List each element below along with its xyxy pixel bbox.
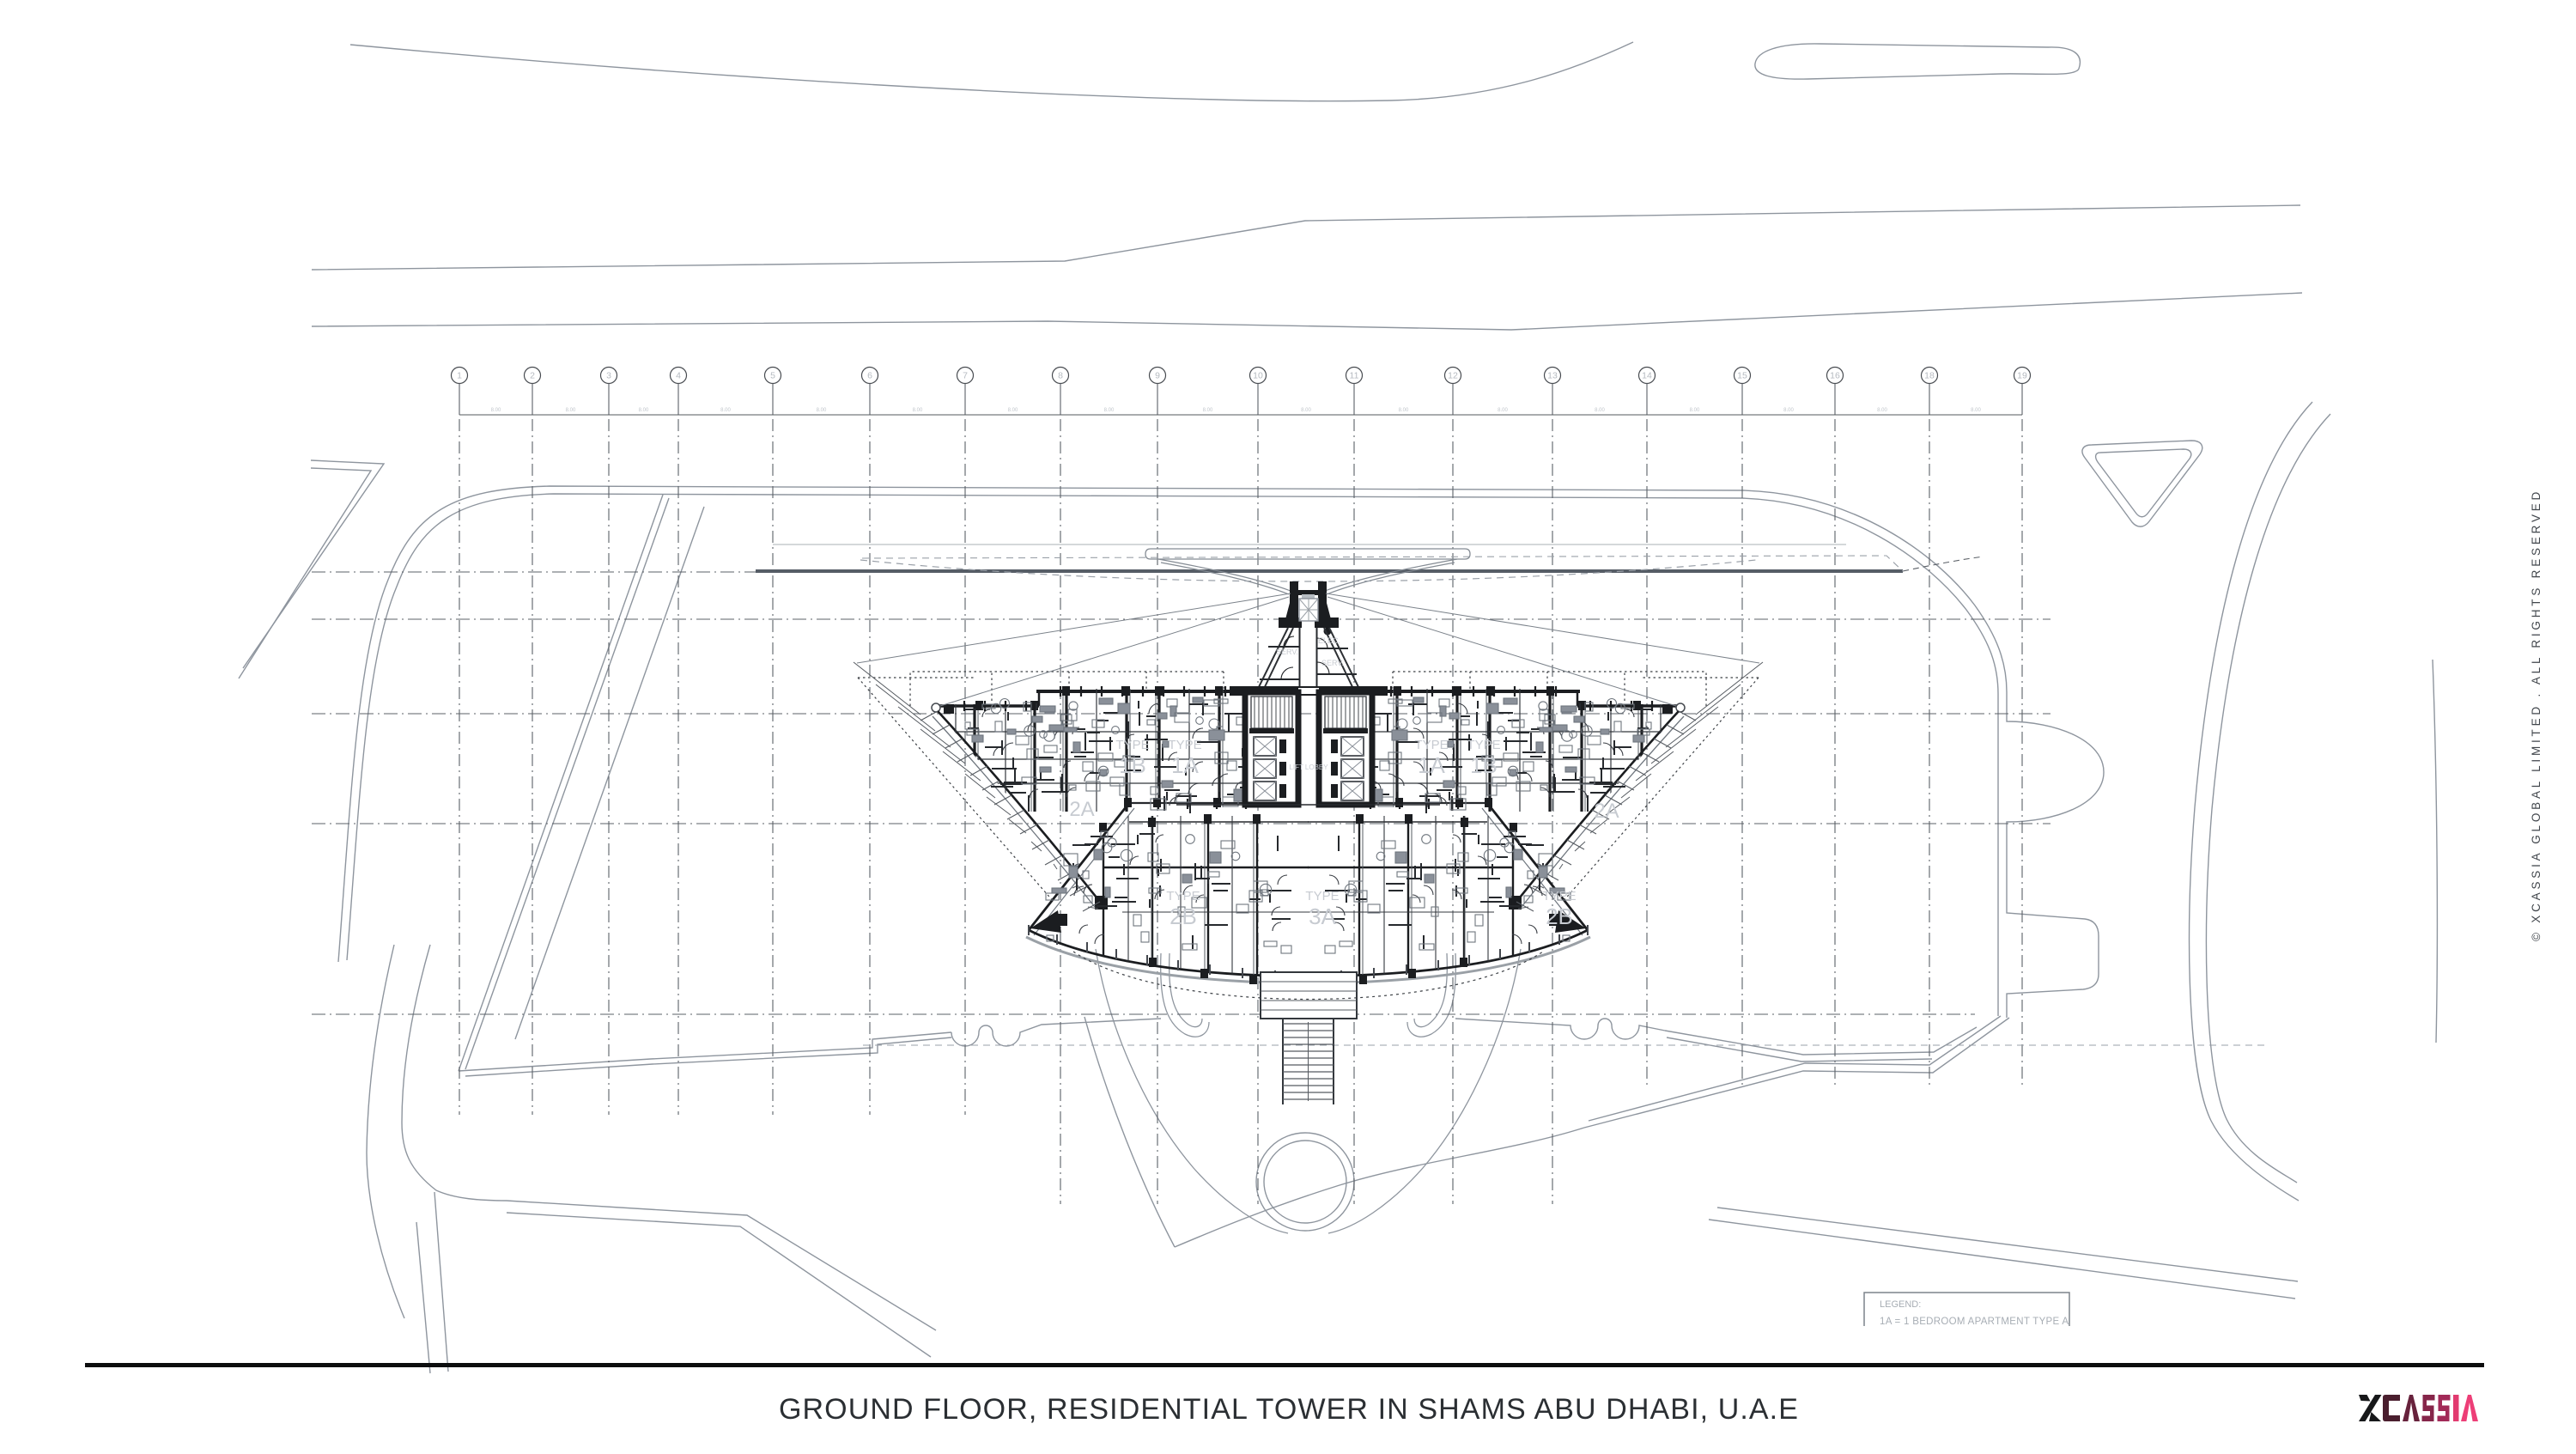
svg-text:6: 6 xyxy=(867,371,872,381)
svg-text:LIFT LOBBY: LIFT LOBBY xyxy=(1289,764,1328,771)
svg-text:14: 14 xyxy=(1642,371,1652,381)
svg-text:8.00: 8.00 xyxy=(913,408,923,413)
svg-text:8.00: 8.00 xyxy=(720,408,731,413)
svg-text:SERV.: SERV. xyxy=(1321,659,1344,667)
svg-text:8.00: 8.00 xyxy=(1877,408,1887,413)
svg-text:16: 16 xyxy=(1830,371,1840,381)
svg-text:SERV.: SERV. xyxy=(1276,648,1298,656)
svg-text:LEGEND:: LEGEND: xyxy=(1880,1299,1921,1310)
svg-text:2A: 2A xyxy=(1069,798,1094,821)
svg-text:8.00: 8.00 xyxy=(817,408,827,413)
svg-text:8.00: 8.00 xyxy=(1008,408,1018,413)
svg-text:5: 5 xyxy=(770,371,775,381)
svg-text:1A = 1 BEDROOM APARTMENT TYPE: 1A = 1 BEDROOM APARTMENT TYPE A xyxy=(1880,1317,2069,1327)
svg-text:9: 9 xyxy=(1155,371,1160,381)
svg-text:GROUND FLOOR, RESIDENTIAL TOWE: GROUND FLOOR, RESIDENTIAL TOWER IN SHAMS… xyxy=(779,1393,1799,1426)
svg-text:12: 12 xyxy=(1448,371,1458,381)
svg-text:TYPE: TYPE xyxy=(1168,738,1201,752)
svg-text:8.00: 8.00 xyxy=(1971,408,1981,413)
svg-text:8.00: 8.00 xyxy=(1399,408,1409,413)
svg-text:1A: 1A xyxy=(1171,752,1199,778)
svg-text:8.00: 8.00 xyxy=(639,408,649,413)
svg-text:2B: 2B xyxy=(1546,903,1573,929)
svg-text:© XCASSIA GLOBAL LIMITED . ALL: © XCASSIA GLOBAL LIMITED . ALL RIGHTS RE… xyxy=(2530,489,2543,941)
svg-text:18: 18 xyxy=(1924,371,1935,381)
svg-text:TYPE: TYPE xyxy=(1115,738,1149,752)
svg-text:8.00: 8.00 xyxy=(1690,408,1700,413)
svg-text:2A: 2A xyxy=(1594,800,1619,823)
svg-text:8.00: 8.00 xyxy=(1104,408,1115,413)
svg-text:8.00: 8.00 xyxy=(1783,408,1794,413)
svg-text:8.00: 8.00 xyxy=(1498,408,1508,413)
svg-text:10: 10 xyxy=(1253,371,1263,381)
svg-text:19: 19 xyxy=(2017,371,2027,381)
svg-text:8.00: 8.00 xyxy=(491,408,501,413)
svg-text:11: 11 xyxy=(1350,371,1359,381)
svg-text:1: 1 xyxy=(457,371,462,381)
svg-text:8.00: 8.00 xyxy=(1203,408,1213,413)
svg-text:2B: 2B xyxy=(1170,903,1197,929)
svg-text:ELEC.: ELEC. xyxy=(1318,636,1340,645)
svg-text:3A: 3A xyxy=(1309,903,1336,929)
svg-text:3: 3 xyxy=(606,371,611,381)
svg-text:TYPE: TYPE xyxy=(1305,889,1339,903)
svg-text:1B: 1B xyxy=(1119,752,1146,778)
svg-text:8.00: 8.00 xyxy=(1301,408,1311,413)
svg-text:1A: 1A xyxy=(1418,752,1445,778)
svg-text:13: 13 xyxy=(1547,371,1558,381)
svg-text:8.00: 8.00 xyxy=(566,408,576,413)
svg-text:TYPE: TYPE xyxy=(1467,738,1500,752)
svg-text:2: 2 xyxy=(530,371,535,381)
svg-text:8.00: 8.00 xyxy=(1595,408,1605,413)
svg-text:1B: 1B xyxy=(1470,752,1498,778)
svg-text:4: 4 xyxy=(676,371,681,381)
svg-text:TYPE: TYPE xyxy=(1542,889,1576,903)
svg-text:7: 7 xyxy=(963,371,968,381)
svg-text:15: 15 xyxy=(1737,371,1747,381)
svg-text:TYPE: TYPE xyxy=(1166,889,1200,903)
svg-text:TYPE: TYPE xyxy=(1414,738,1448,752)
svg-text:8: 8 xyxy=(1058,371,1063,381)
